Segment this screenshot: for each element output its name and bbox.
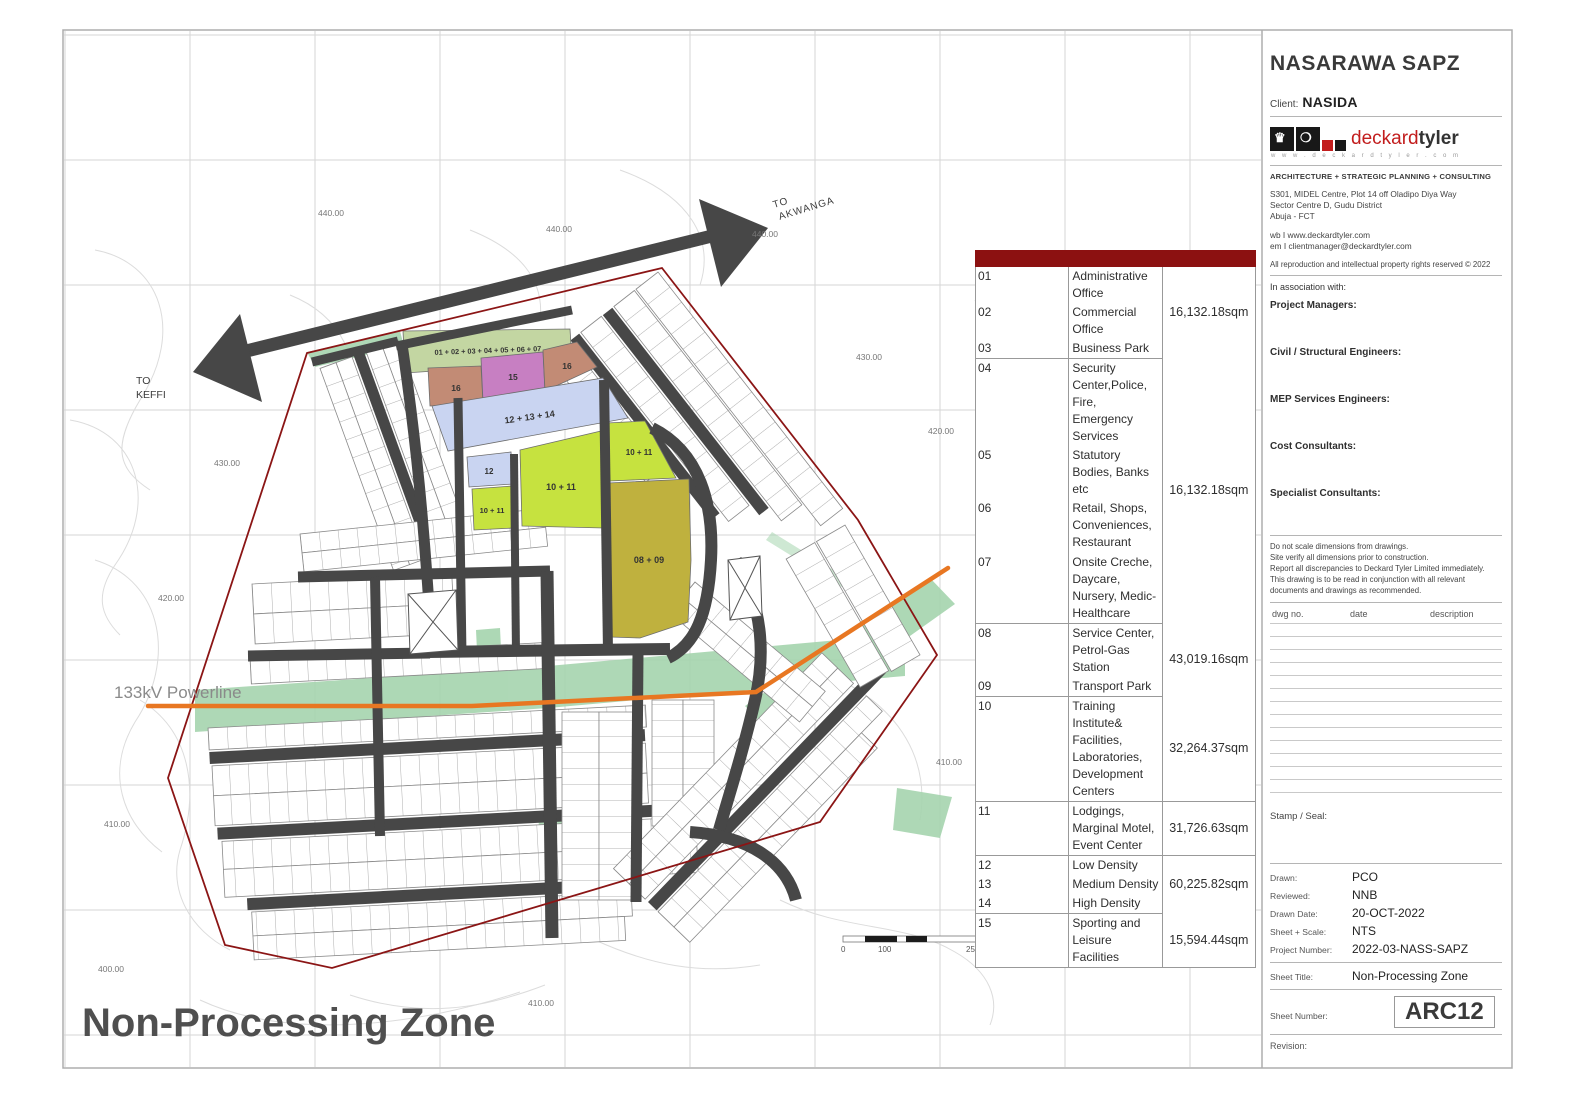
label-10-11-center: 10 + 11 bbox=[546, 482, 576, 492]
brand-url: w w w . d e c k a r d t y l e r . c o m bbox=[1271, 153, 1502, 159]
revision-table-lines bbox=[1270, 623, 1502, 805]
label-08-09: 08 + 09 bbox=[634, 555, 664, 565]
area-value: 32,264.37sqm bbox=[1162, 696, 1255, 801]
block-10-11-center bbox=[520, 431, 604, 528]
stamp-seal-label: Stamp / Seal: bbox=[1270, 811, 1502, 857]
legend-row-10: 10 Training Institute& Facilities, Labor… bbox=[976, 696, 1256, 801]
legend-row-08: 08 Service Center, Petrol-Gas Station 43… bbox=[976, 623, 1256, 677]
role-project-managers: Project Managers: bbox=[1270, 300, 1502, 311]
powerline-label: 133kV Powerline bbox=[114, 683, 242, 702]
svg-text:400.00: 400.00 bbox=[98, 964, 124, 974]
label-15: 15 bbox=[508, 372, 518, 382]
drawing-sheet: { "titleblock": { "project_title": "NASA… bbox=[0, 0, 1575, 1114]
label-10-11-right: 10 + 11 bbox=[626, 448, 653, 457]
label-16-right: 16 bbox=[562, 361, 572, 371]
company-logo: ♛ ❍ deckardtyler bbox=[1270, 127, 1502, 151]
arrowhead-southwest bbox=[193, 314, 262, 402]
legend-header bbox=[976, 251, 1256, 267]
label-12: 12 bbox=[485, 467, 494, 476]
area-value: 16,132.18sqm bbox=[1162, 359, 1255, 623]
rights-notice: All reproduction and intellectual proper… bbox=[1270, 260, 1502, 269]
area-value: 31,726.63sqm bbox=[1162, 801, 1255, 855]
sheet-number-row: Sheet Number: ARC12 bbox=[1270, 996, 1502, 1028]
svg-text:420.00: 420.00 bbox=[928, 426, 954, 436]
svg-text:430.00: 430.00 bbox=[214, 458, 240, 468]
project-title: NASARAWA SAPZ bbox=[1270, 52, 1502, 76]
area-value: 16,132.18sqm bbox=[1162, 267, 1255, 359]
legend-row-12: 12 Low Density 60,225.82sqm bbox=[976, 856, 1256, 876]
scale-bar: 0 100 250 bbox=[841, 936, 980, 954]
drawing-title: Non-Processing Zone bbox=[82, 1001, 495, 1045]
to-keffi-line2: KEFFI bbox=[136, 389, 166, 401]
role-civil-structural: Civil / Structural Engineers: bbox=[1270, 347, 1502, 358]
sheet-number: ARC12 bbox=[1394, 996, 1495, 1028]
landuse-legend-table: 01 Administrative Office 16,132.18sqm 02… bbox=[975, 250, 1256, 968]
label-10-11-left: 10 + 11 bbox=[480, 506, 505, 515]
svg-text:410.00: 410.00 bbox=[528, 998, 554, 1008]
to-keffi-line1: TO bbox=[136, 375, 150, 387]
sheet-title-row: Sheet Title: Non-Processing Zone bbox=[1270, 969, 1502, 983]
client-label: Client: bbox=[1270, 99, 1298, 110]
meta-drawn: Drawn: PCO bbox=[1270, 870, 1502, 884]
email: em I clientmanager@deckardtyler.com bbox=[1270, 241, 1502, 252]
role-mep: MEP Services Engineers: bbox=[1270, 394, 1502, 405]
svg-text:410.00: 410.00 bbox=[936, 757, 962, 767]
scale-100: 100 bbox=[878, 945, 892, 954]
role-specialist: Specialist Consultants: bbox=[1270, 488, 1502, 499]
meta-project-number: Project Number: 2022-03-NASS-SAPZ bbox=[1270, 942, 1502, 956]
svg-text:440.00: 440.00 bbox=[752, 229, 778, 239]
revision-table-header: dwg no. date description bbox=[1272, 609, 1502, 619]
client-row: Client:NASIDA bbox=[1270, 94, 1502, 110]
legend-row-04: 04 Security Center,Police, Fire, Emergen… bbox=[976, 359, 1256, 447]
logo-mark-icon: ❍ bbox=[1296, 127, 1320, 151]
association-label: In association with: bbox=[1270, 282, 1502, 292]
area-value: 43,019.16sqm bbox=[1162, 623, 1255, 696]
logo-mark-icon: ♛ bbox=[1270, 127, 1294, 151]
scale-0: 0 bbox=[841, 945, 846, 954]
meta-drawn-date: Drawn Date: 20-OCT-2022 bbox=[1270, 906, 1502, 920]
title-block: NASARAWA SAPZ Client:NASIDA ♛ ❍ deckardt… bbox=[1270, 52, 1502, 1051]
legend-row-01: 01 Administrative Office 16,132.18sqm bbox=[976, 267, 1256, 304]
legend-row-15: 15 Sporting and Leisure Facilities 15,59… bbox=[976, 914, 1256, 968]
contact: wb I www.deckardtyler.com em I clientman… bbox=[1270, 230, 1502, 252]
address: S301, MIDEL Centre, Plot 14 off Oladipo … bbox=[1270, 189, 1502, 223]
meta-reviewed: Reviewed: NNB bbox=[1270, 888, 1502, 902]
tagline: ARCHITECTURE + STRATEGIC PLANNING + CONS… bbox=[1270, 172, 1502, 181]
web: wb I www.deckardtyler.com bbox=[1270, 230, 1502, 241]
brand-name: deckardtyler bbox=[1351, 128, 1459, 150]
label-16-left: 16 bbox=[451, 383, 461, 393]
area-value: 60,225.82sqm bbox=[1162, 856, 1255, 914]
area-value: 15,594.44sqm bbox=[1162, 914, 1255, 968]
meta-sheet-scale: Sheet + Scale: NTS bbox=[1270, 924, 1502, 938]
general-notes: Do not scale dimensions from drawings. S… bbox=[1270, 542, 1502, 597]
logo-red-square-icon bbox=[1322, 140, 1333, 151]
svg-text:430.00: 430.00 bbox=[856, 352, 882, 362]
svg-text:420.00: 420.00 bbox=[158, 593, 184, 603]
svg-text:410.00: 410.00 bbox=[104, 819, 130, 829]
revision-label: Revision: bbox=[1270, 1041, 1502, 1051]
logo-black-square-icon bbox=[1335, 140, 1346, 151]
client-name: NASIDA bbox=[1302, 94, 1357, 110]
svg-text:440.00: 440.00 bbox=[318, 208, 344, 218]
role-cost: Cost Consultants: bbox=[1270, 441, 1502, 452]
legend-row-11: 11 Lodgings, Marginal Motel, Event Cente… bbox=[976, 801, 1256, 855]
svg-text:440.00: 440.00 bbox=[546, 224, 572, 234]
